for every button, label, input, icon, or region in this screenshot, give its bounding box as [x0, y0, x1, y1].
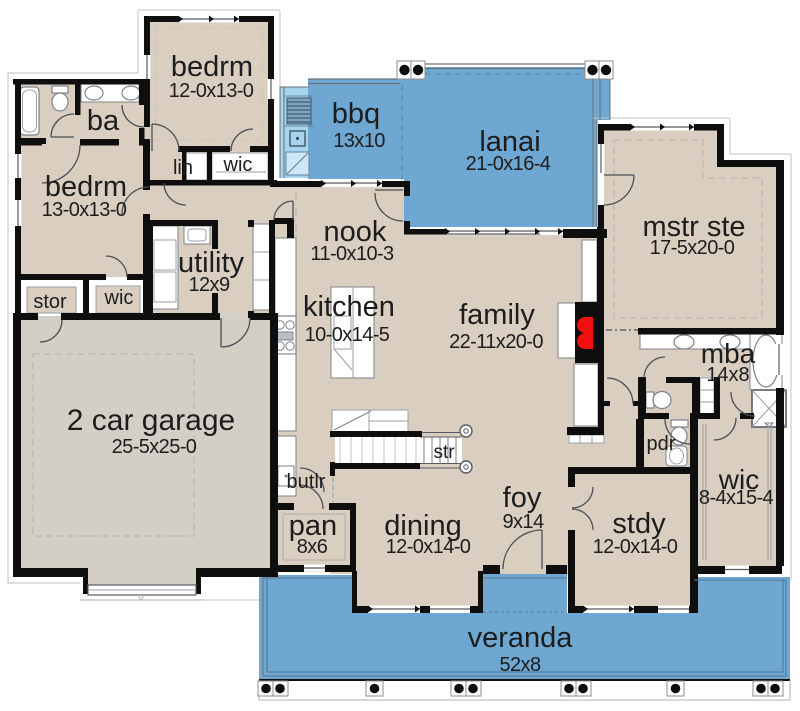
- svg-text:wic: wic: [104, 287, 134, 309]
- svg-text:14x8: 14x8: [706, 364, 749, 386]
- svg-text:9x14: 9x14: [503, 511, 544, 533]
- svg-text:stor: stor: [33, 291, 67, 313]
- svg-text:butlr: butlr: [287, 471, 326, 493]
- svg-text:lin: lin: [173, 157, 193, 179]
- svg-text:25-5x25-0: 25-5x25-0: [112, 436, 197, 458]
- svg-text:family: family: [459, 299, 535, 331]
- svg-text:12-0x14-0: 12-0x14-0: [593, 536, 678, 558]
- svg-text:wic: wic: [223, 154, 253, 176]
- svg-text:22-11x20-0: 22-11x20-0: [449, 331, 543, 353]
- svg-text:12-0x13-0: 12-0x13-0: [169, 80, 254, 102]
- svg-text:kitchen: kitchen: [303, 291, 395, 323]
- svg-text:foy: foy: [503, 482, 542, 514]
- svg-text:52x8: 52x8: [500, 654, 541, 676]
- svg-text:12x9: 12x9: [189, 274, 230, 296]
- svg-text:bbq: bbq: [332, 98, 380, 130]
- svg-text:veranda: veranda: [468, 622, 574, 654]
- svg-text:10-0x14-5: 10-0x14-5: [305, 324, 390, 346]
- svg-text:13-0x13-0: 13-0x13-0: [42, 199, 127, 221]
- svg-text:8x6: 8x6: [297, 536, 328, 558]
- svg-text:str: str: [433, 442, 455, 463]
- svg-text:12-0x14-0: 12-0x14-0: [386, 536, 471, 558]
- svg-text:8-4x15-4: 8-4x15-4: [699, 487, 774, 509]
- svg-text:ba: ba: [87, 105, 120, 137]
- svg-text:21-0x16-4: 21-0x16-4: [466, 153, 551, 175]
- svg-text:13x10: 13x10: [333, 130, 385, 152]
- svg-text:2 car garage: 2 car garage: [67, 404, 235, 437]
- svg-text:11-0x10-3: 11-0x10-3: [310, 243, 394, 265]
- svg-text:pdr: pdr: [647, 433, 676, 455]
- svg-text:17-5x20-0: 17-5x20-0: [650, 237, 735, 259]
- svg-text:bedrm: bedrm: [171, 51, 253, 83]
